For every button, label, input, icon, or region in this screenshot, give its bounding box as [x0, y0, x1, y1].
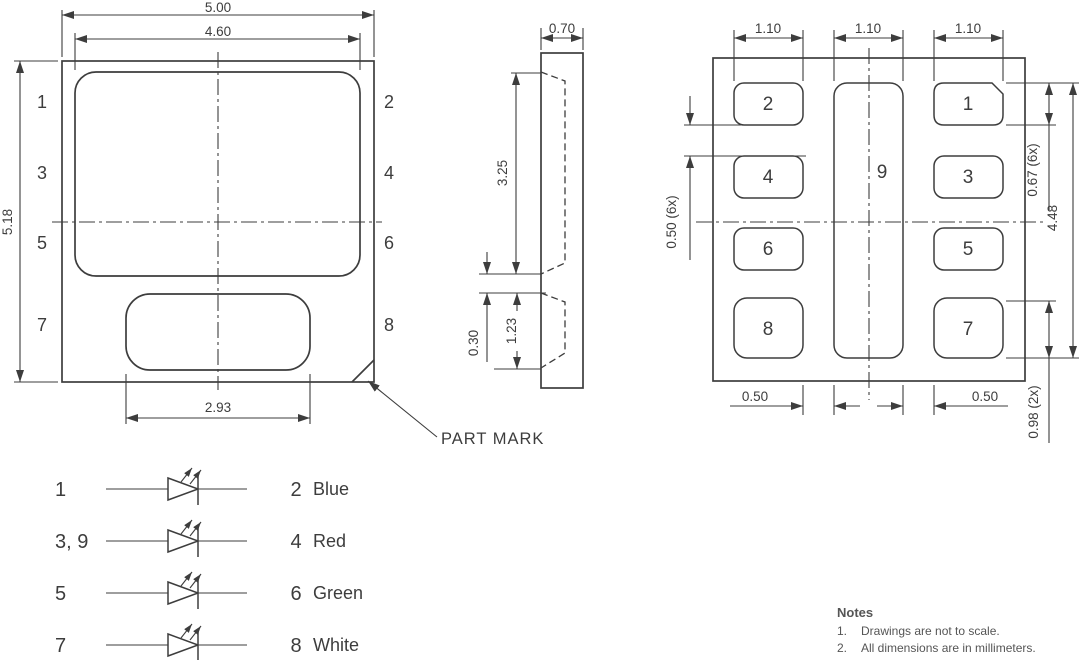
dim-label-pad-gap-right: 0.50: [972, 389, 998, 404]
led-emission-arrow: [190, 574, 201, 588]
legend-anode-label: 7: [55, 635, 66, 657]
legend-row-white: 7 8 White: [55, 624, 359, 660]
dim-label-pad-span: 4.48: [1045, 205, 1060, 231]
led-package-drawing: 5.00 4.60 5.18 2.93 1 3 5 7 2 4 6: [0, 0, 1080, 660]
pad-label-5: 5: [963, 239, 974, 260]
dim-outer-height: 5.18: [0, 61, 58, 382]
legend-row-green: 5 6 Green: [55, 572, 363, 609]
legend-anode-label: 5: [55, 583, 66, 605]
dim-label-outer-width: 5.00: [205, 0, 231, 15]
led-diode-icon: [168, 634, 198, 656]
front-view: 5.00 4.60 5.18 2.93 1 3 5 7 2 4 6: [0, 0, 544, 448]
pin-label-left-3: 3: [37, 163, 47, 183]
part-mark-chamfer: [352, 360, 374, 382]
side-view: 0.70 3.25 0.30 1.23: [466, 21, 583, 388]
pad-label-3: 3: [963, 167, 974, 188]
pad-label-8: 8: [763, 319, 774, 340]
side-package-outline: [541, 53, 583, 388]
dim-label-web-thickness: 0.30: [466, 330, 481, 356]
dim-label-bottom-pad-width: 2.93: [205, 400, 231, 415]
led-diode-icon: [168, 530, 198, 552]
dim-label-pad-width-center: 1.10: [855, 21, 881, 36]
pad-label-9: 9: [877, 162, 888, 183]
pin-label-right-6: 6: [384, 233, 394, 253]
legend-cathode-label: 2: [290, 479, 301, 501]
dim-pad-gap-horizontal-right: 0.50: [877, 385, 1008, 415]
pad-label-4: 4: [763, 167, 774, 188]
dim-label-pad-gap-left: 0.50: [742, 389, 768, 404]
led-emission-arrow: [190, 626, 201, 640]
dim-label-upper-cavity-height: 3.25: [495, 160, 510, 186]
side-upper-cavity-hidden-line: [541, 72, 565, 274]
part-mark-callout: PART MARK: [368, 381, 544, 448]
legend-row-red: 3, 9 4 Red: [55, 520, 346, 557]
pin-label-left-1: 1: [37, 92, 47, 112]
dim-pad-width-left: 1.10: [734, 21, 803, 81]
pad-label-2: 2: [763, 94, 774, 115]
legend-color-name: Blue: [313, 479, 349, 499]
legend-cathode-label: 8: [290, 635, 301, 657]
dim-web-thickness: 0.30: [466, 252, 546, 362]
drawing-canvas: 5.00 4.60 5.18 2.93 1 3 5 7 2 4 6: [0, 0, 1080, 660]
led-emission-arrow: [181, 624, 192, 638]
legend-anode-label: 3, 9: [55, 531, 88, 553]
legend-color-name: Red: [313, 531, 346, 551]
dim-label-lower-cavity-height: 1.23: [504, 318, 519, 344]
pad-label-7: 7: [963, 319, 974, 340]
pad-label-6: 6: [763, 239, 774, 260]
notes: Notes 1. Drawings are not to scale. 2. A…: [837, 605, 1036, 655]
dim-label-pad-width-right: 1.10: [955, 21, 981, 36]
dim-thickness: 0.70: [541, 21, 583, 50]
side-lower-cavity-hidden-line: [541, 293, 565, 368]
led-circuit-legend: 1 2 Blue 3, 9 4 Red 5: [55, 468, 363, 660]
dim-label-inner-width: 4.60: [205, 24, 231, 39]
part-mark-label: PART MARK: [441, 430, 544, 448]
led-diode-icon: [168, 478, 198, 500]
note-1-text: Drawings are not to scale.: [861, 624, 1000, 638]
dim-label-thickness: 0.70: [549, 21, 575, 36]
dim-label-corner-pad-height: 0.98 (2x): [1026, 385, 1041, 438]
dim-pad-width-right: 1.10: [934, 21, 1003, 81]
pin-label-right-2: 2: [384, 92, 394, 112]
pin-label-left-5: 5: [37, 233, 47, 253]
led-emission-arrow: [190, 522, 201, 536]
bottom-view: 2 4 6 8 1 3 5 7 9 1.10 1.10 1.10: [664, 21, 1079, 443]
legend-color-name: Green: [313, 583, 363, 603]
legend-anode-label: 1: [55, 479, 66, 501]
leader-line: [368, 381, 437, 437]
led-emission-arrow: [190, 470, 201, 484]
dim-label-pad-gap-vertical: 0.50 (6x): [664, 195, 679, 248]
pin-label-right-4: 4: [384, 163, 394, 183]
led-emission-arrow: [181, 572, 192, 586]
notes-title: Notes: [837, 605, 873, 620]
dim-upper-cavity-height: 3.25: [479, 73, 541, 274]
dim-label-pad-height: 0.67 (6x): [1025, 143, 1040, 196]
dim-label-pad-width-left: 1.10: [755, 21, 781, 36]
note-2-text: All dimensions are in millimeters.: [861, 641, 1036, 655]
led-diode-icon: [168, 582, 198, 604]
pad-label-1: 1: [963, 94, 974, 115]
led-emission-arrow: [181, 468, 192, 482]
dim-corner-pad-height: 0.98 (2x): [1006, 301, 1079, 443]
led-emission-arrow: [181, 520, 192, 534]
dim-lower-cavity-height: 1.23: [494, 293, 541, 369]
note-1-number: 1.: [837, 624, 847, 638]
dim-pad-gap-horizontal-left: 0.50: [730, 385, 860, 415]
legend-color-name: White: [313, 635, 359, 655]
legend-cathode-label: 4: [290, 531, 301, 553]
dim-pad-height: 0.67 (6x): [1006, 83, 1079, 210]
pin-label-right-8: 8: [384, 315, 394, 335]
legend-cathode-label: 6: [290, 583, 301, 605]
dim-label-outer-height: 5.18: [0, 209, 15, 235]
legend-row-blue: 1 2 Blue: [55, 468, 349, 505]
note-2-number: 2.: [837, 641, 847, 655]
pin-label-left-7: 7: [37, 315, 47, 335]
